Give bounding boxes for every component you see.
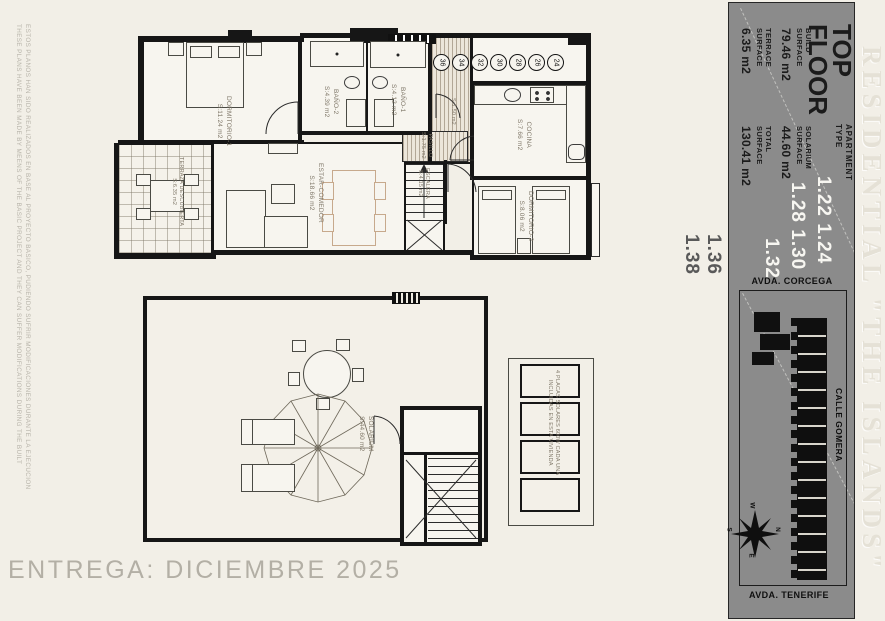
apartment-numbers-row2: 1.28 1.30 [786,182,808,270]
window-tag-number: 28 [514,59,521,67]
bulkhead-landing-wall [400,452,482,455]
nightstand [168,42,184,56]
window-tag: 34 [452,54,469,71]
solar-panel [520,478,580,512]
toilet [344,76,360,89]
window-tag-number: 24 [552,59,559,67]
site-building-block [760,334,790,350]
coffee-table [271,184,295,204]
compass-w: W [749,502,756,508]
toilet [372,76,388,89]
build-surface-block: BUILD SURFACE 79.46 m2 [779,28,812,81]
kitchen-sink [504,88,521,102]
vent-grille [392,292,420,304]
label-bathroom2: BAÑO-2S:4.39 m2 [321,86,339,117]
pillow [536,190,566,200]
solarium-chair [292,340,306,352]
street-name-top: AVDA. CORCEGA [730,276,854,286]
label-solar-panels: 4 PLACAS SOLARES 600W CADA UNAINCLUIDAS … [545,370,560,475]
wall-left-bedroom1 [138,36,144,144]
label-corridor: PASILLOS:1.75 m2 [418,132,433,159]
door-arc-kitchen [448,134,476,162]
door-arc-bedroom1 [264,100,300,136]
door-arc-bulkhead [372,414,402,446]
wall-bath-divider [366,36,368,135]
site-building-row [797,318,827,580]
drain-dot [336,53,339,56]
apartment-numbers-row3: 1.32 [760,238,782,279]
compass-e: E [748,553,755,557]
label-bedroom1: DORMITORIO-1S:11.24 m2 [214,96,232,146]
window-tag: 26 [528,54,545,71]
cooktop [530,87,554,103]
label-living: ESTAR-COMEDORS:18.66 m2 [306,163,324,223]
dining-chair [374,182,386,200]
solarium-chair [288,372,300,386]
shower-tray [310,41,364,67]
wall-top-right [430,33,590,38]
margin-disclaimer: ESTOS PLANOS HAN SIDO REALIZADOS EN BASE… [14,24,31,490]
terrace-surface-block: TERRACE SURFACE 6.35 m2 [739,28,772,74]
street-name-right: CALLE GOMERA [834,388,844,462]
compass-star [731,510,779,558]
window-tag-number: 30 [495,59,502,67]
label-bedroom2: DORMITORIO-2S:8.06 m2 [516,191,534,241]
pillow [218,46,240,58]
site-building-block [754,312,780,332]
window-tag: 28 [509,54,526,71]
compass-rose: N S E W [731,510,779,558]
sofa-section [226,190,266,248]
wall-terrace-left [114,143,119,259]
sofa-section [264,216,308,248]
solarium-chair [336,339,350,351]
wall-kitchen-bedroom2 [470,176,591,180]
window-tag: 30 [490,54,507,71]
apartment-numbers-row1: 1.22 1.24 [812,176,834,264]
window-tag-number: 34 [457,59,464,67]
wall-bedroom2-bottom [470,255,591,260]
label-hall-area: S:1.50 m2 [449,98,456,125]
site-building-block [752,352,774,365]
dining-chair [374,214,386,232]
shower-tray [370,41,426,68]
terrace-chair [184,208,199,220]
pillow [190,46,212,58]
apartment-type-label: APARTMENTTYPE [834,124,853,181]
disclaimer-english: THESE PLANS HAVE BEEN MADE BY MEENS OF T… [14,24,23,490]
sun-lounger [241,464,295,492]
terrace-chair [136,208,151,220]
apartment-numbers-row4: 1.36 [702,234,724,275]
kitchen-sink-2 [568,144,585,160]
compass-n: N [774,527,781,532]
sideboard [268,143,298,154]
total-surface-block: TOTAL SURFACE 130.41 m2 [739,126,772,186]
floor-plan-sheet: { "disclaimer": { "es": "ESTOS PLANOS HA… [0,0,885,621]
wall-terrace-bottom [114,254,216,259]
lounger-headrest [252,420,253,444]
window-tag: 32 [471,54,488,71]
washbasin-unit [346,99,366,127]
terrace-chair [184,174,199,186]
residential-watermark: RESIDENTIAL "THE ISLANDS" [856,46,885,573]
delivery-date-text: ENTREGA: DICIEMBRE 2025 [8,556,402,585]
round-table [303,350,351,398]
terrace-chair [136,174,151,186]
side-balcony [591,183,600,257]
apartment-numbers-row5: 1.38 [680,234,702,275]
sun-lounger [241,419,295,445]
wall-corner-top-right [568,33,590,45]
label-terrace: TERRAZA DESCUBIERTAS:6.35 m2 [169,157,184,226]
window-tag: 24 [547,54,564,71]
compass-s: S [726,527,733,531]
solarium-chair [352,368,364,382]
disclaimer-spanish: ESTOS PLANOS HAN SIDO REALIZADOS EN BASE… [23,24,32,490]
door-arc-living [446,162,478,194]
solarium-surface-block: SOLARIUM SURFACE 44.60 m2 [779,126,812,179]
street-name-bottom: AVDA. TENERIFE [730,590,848,600]
nightstand [246,42,262,56]
wall-bath-bottom [298,131,432,135]
stair-cut-lines-lower [404,458,478,540]
window-tag-number: 26 [533,59,540,67]
window-tag-number: 36 [438,59,445,67]
pillow [482,190,512,200]
wall-right [586,33,591,260]
label-stairs: ESCALERAS:4.15 m2 [415,168,430,199]
window-tag: 36 [433,54,450,71]
drain-dot [397,53,400,56]
dining-table [332,170,376,246]
lounger-headrest [252,465,253,491]
label-bathroom1: BAÑO-1S:4.12 m2 [388,84,406,115]
label-kitchen: COCINAS:7.66 m2 [514,119,532,150]
window-tag-number: 32 [476,59,483,67]
